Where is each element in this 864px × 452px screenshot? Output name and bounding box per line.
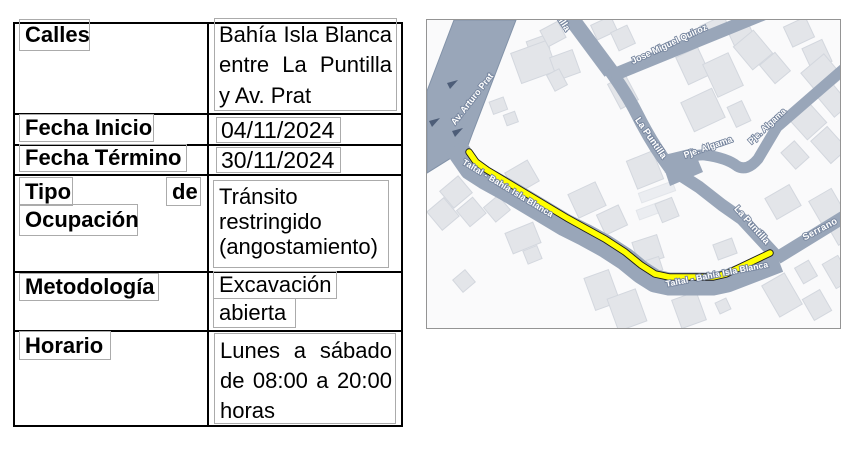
svg-text:La Puntilla: La Puntilla [731, 204, 772, 248]
